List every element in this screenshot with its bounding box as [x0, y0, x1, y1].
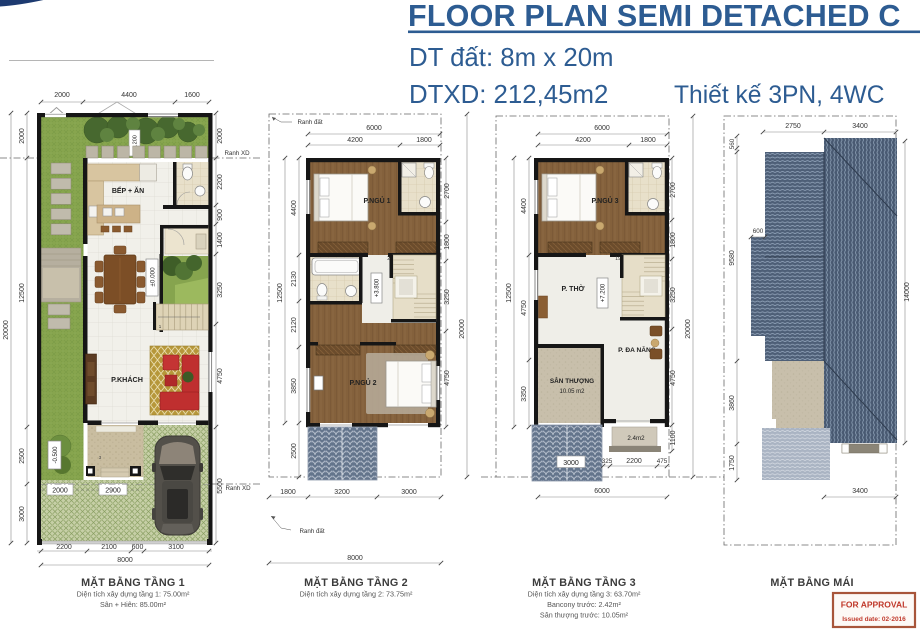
svg-text:475: 475	[657, 458, 668, 465]
svg-text:MẶT BẰNG MÁI: MẶT BẰNG MÁI	[770, 576, 853, 589]
svg-text:3250: 3250	[670, 287, 677, 303]
svg-text:Diện tích xây dựng tầng 1: 75.: Diện tích xây dựng tầng 1: 75.00m²	[77, 590, 190, 599]
svg-text:3000: 3000	[563, 460, 579, 467]
svg-text:8000: 8000	[347, 555, 363, 562]
svg-text:Ranh đất: Ranh đất	[299, 528, 324, 535]
svg-text:2200: 2200	[217, 174, 224, 190]
svg-text:MẶT BẰNG TẦNG 1: MẶT BẰNG TẦNG 1	[81, 576, 185, 589]
svg-text:600: 600	[132, 544, 144, 551]
svg-text:SÂN THƯỢNG: SÂN THƯỢNG	[550, 376, 594, 385]
svg-text:MẶT BẰNG TẦNG 2: MẶT BẰNG TẦNG 2	[304, 576, 408, 589]
svg-text:2.4m2: 2.4m2	[627, 435, 645, 442]
svg-text:DT đất: 8m x 20m: DT đất: 8m x 20m	[409, 44, 614, 72]
svg-text:3250: 3250	[444, 289, 451, 305]
svg-text:3250: 3250	[217, 282, 224, 298]
svg-text:4200: 4200	[347, 137, 363, 144]
svg-text:5500: 5500	[217, 478, 224, 494]
svg-text:+7.200: +7.200	[601, 283, 607, 302]
svg-text:900: 900	[217, 209, 224, 221]
svg-text:2700: 2700	[444, 183, 451, 199]
svg-text:Ranh XD: Ranh XD	[224, 150, 250, 157]
svg-text:4400: 4400	[291, 200, 298, 216]
svg-text:12500: 12500	[506, 283, 513, 303]
svg-text:4400: 4400	[521, 198, 528, 214]
svg-text:Diện tích xây dựng tầng 2: 73.: Diện tích xây dựng tầng 2: 73.75m²	[300, 590, 413, 599]
svg-text:3000: 3000	[19, 506, 26, 522]
svg-text:12500: 12500	[19, 283, 26, 303]
svg-text:FLOOR PLAN SEMI DETACHED C: FLOOR PLAN SEMI DETACHED C	[408, 0, 901, 33]
svg-text:1100: 1100	[670, 430, 677, 445]
svg-text:2750: 2750	[785, 123, 801, 130]
svg-text:3000: 3000	[401, 489, 417, 496]
svg-text:20000: 20000	[459, 319, 466, 339]
svg-text:4750: 4750	[444, 370, 451, 386]
svg-text:9580: 9580	[729, 250, 736, 266]
svg-text:2500: 2500	[291, 443, 298, 459]
svg-text:2130: 2130	[291, 271, 298, 287]
svg-text:3400: 3400	[852, 123, 868, 130]
svg-text:6000: 6000	[366, 125, 382, 132]
svg-text:600: 600	[753, 228, 764, 235]
svg-text:MẶT BẰNG TẦNG 3: MẶT BẰNG TẦNG 3	[532, 576, 636, 589]
svg-text:FOR APPROVAL: FOR APPROVAL	[841, 600, 908, 610]
svg-text:14000: 14000	[904, 282, 911, 302]
svg-text:-0.500: -0.500	[53, 446, 59, 464]
svg-text:1800: 1800	[670, 232, 677, 248]
svg-text:2200: 2200	[56, 544, 72, 551]
svg-text:4750: 4750	[521, 300, 528, 316]
svg-text:P.NGỦ 3: P.NGỦ 3	[591, 196, 618, 205]
svg-text:1800: 1800	[640, 137, 656, 144]
svg-text:3350: 3350	[521, 386, 528, 402]
svg-text:+3.800: +3.800	[375, 278, 381, 297]
svg-text:560: 560	[729, 138, 736, 149]
svg-text:2000: 2000	[52, 488, 68, 495]
svg-text:20000: 20000	[685, 319, 692, 339]
svg-text:1800: 1800	[280, 489, 296, 496]
svg-text:Diện tích xây dựng tầng 3: 63.: Diện tích xây dựng tầng 3: 63.70m²	[528, 590, 641, 599]
svg-text:1400: 1400	[217, 232, 224, 248]
svg-text:12500: 12500	[277, 283, 284, 303]
svg-text:2500: 2500	[19, 448, 26, 464]
svg-text:P.NGỦ 2: P.NGỦ 2	[349, 378, 376, 387]
svg-text:3860: 3860	[729, 395, 736, 411]
svg-text:±0.000: ±0.000	[150, 267, 157, 287]
svg-text:4750: 4750	[217, 368, 224, 384]
svg-text:2000: 2000	[54, 92, 70, 99]
svg-text:P. THỜ: P. THỜ	[562, 284, 585, 293]
svg-text:3100: 3100	[168, 544, 184, 551]
svg-text:6000: 6000	[594, 488, 610, 495]
svg-text:2120: 2120	[291, 317, 298, 333]
svg-text:Issued date: 02-2016: Issued date: 02-2016	[842, 616, 906, 623]
svg-text:2000: 2000	[217, 128, 224, 144]
svg-text:2700: 2700	[670, 182, 677, 198]
svg-text:Ranh đất: Ranh đất	[297, 119, 322, 126]
svg-text:2000: 2000	[19, 128, 26, 144]
svg-text:P.KHÁCH: P.KHÁCH	[111, 375, 143, 384]
svg-text:DTXD: 212,45m2: DTXD: 212,45m2	[409, 81, 608, 109]
svg-text:1800: 1800	[444, 234, 451, 250]
svg-text:6000: 6000	[594, 125, 610, 132]
svg-text:Sân thượng trước: 10.05m²: Sân thượng trước: 10.05m²	[540, 611, 629, 620]
svg-text:2900: 2900	[105, 488, 121, 495]
svg-text:2200: 2200	[626, 458, 642, 465]
svg-text:10.05 m2: 10.05 m2	[559, 389, 585, 395]
svg-text:4750: 4750	[670, 370, 677, 386]
svg-text:8000: 8000	[117, 557, 133, 564]
svg-text:3200: 3200	[334, 489, 350, 496]
svg-text:1800: 1800	[416, 137, 432, 144]
svg-text:1750: 1750	[729, 455, 736, 471]
svg-text:20000: 20000	[3, 320, 10, 340]
svg-text:Sân + Hiên: 85.00m²: Sân + Hiên: 85.00m²	[100, 600, 167, 609]
svg-text:Thiết kế 3PN, 4WC: Thiết kế 3PN, 4WC	[674, 82, 884, 109]
svg-text:P.NGỦ 1: P.NGỦ 1	[363, 196, 390, 205]
svg-text:Ranh XD: Ranh XD	[225, 485, 251, 492]
svg-text:325: 325	[602, 458, 613, 465]
svg-text:3850: 3850	[291, 378, 298, 394]
svg-text:Bancony trước: 2.42m²: Bancony trước: 2.42m²	[547, 600, 621, 609]
svg-text:3400: 3400	[852, 488, 868, 495]
svg-text:1600: 1600	[184, 92, 200, 99]
svg-text:4200: 4200	[575, 137, 591, 144]
svg-text:4400: 4400	[121, 92, 137, 99]
svg-text:2100: 2100	[101, 544, 117, 551]
